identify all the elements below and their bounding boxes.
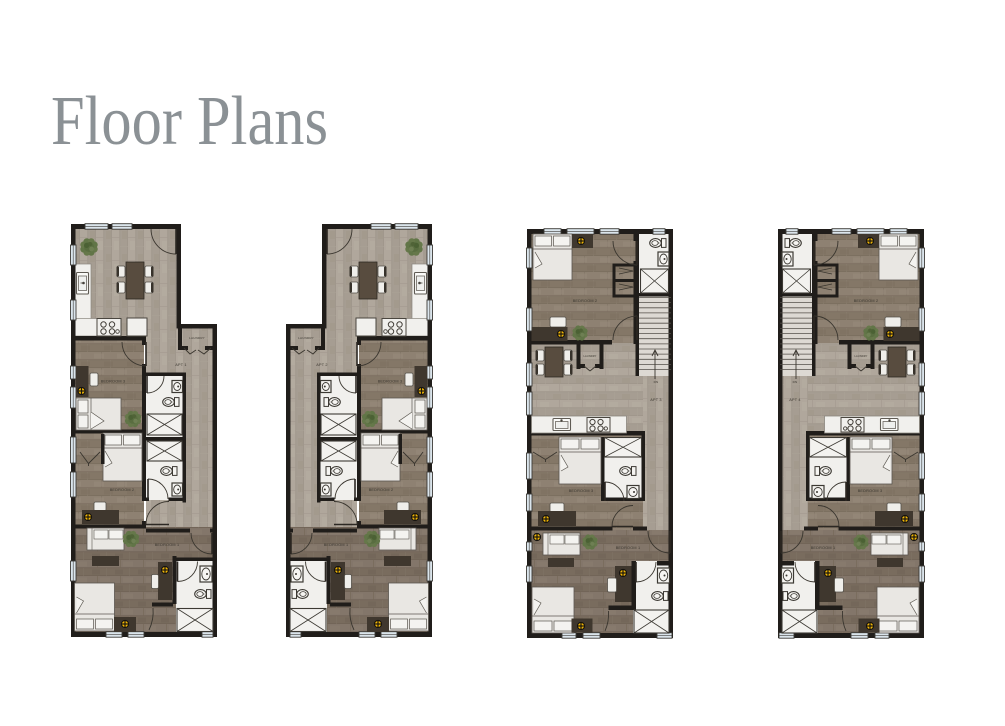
svg-text:APT 2: APT 2 [316,363,327,367]
svg-text:BEDROOM 1: BEDROOM 1 [616,546,641,550]
svg-text:BEDROOM 1: BEDROOM 1 [811,546,836,550]
svg-text:Floor Plans: Floor Plans [51,83,328,160]
svg-text:BEDROOM 1: BEDROOM 1 [155,543,180,547]
svg-text:LAUNDRY: LAUNDRY [854,354,867,358]
svg-text:BEDROOM 1: BEDROOM 1 [324,543,349,547]
svg-text:LAUNDRY: LAUNDRY [583,354,596,358]
svg-text:BEDROOM 3: BEDROOM 3 [101,380,126,384]
svg-text:BEDROOM 3: BEDROOM 3 [569,489,594,493]
svg-text:APT 1: APT 1 [175,363,186,367]
svg-text:DN: DN [793,380,798,384]
svg-text:LAUNDRY: LAUNDRY [298,336,314,340]
svg-text:APT 4: APT 4 [789,398,800,402]
svg-text:BEDROOM 2: BEDROOM 2 [573,299,598,303]
svg-text:BEDROOM 3: BEDROOM 3 [378,380,403,384]
svg-text:BEDROOM 3: BEDROOM 3 [858,489,883,493]
svg-text:LAUNDRY: LAUNDRY [189,336,205,340]
svg-text:APT 3: APT 3 [650,398,661,402]
svg-text:BEDROOM 2: BEDROOM 2 [110,488,135,492]
svg-text:BEDROOM 2: BEDROOM 2 [854,299,879,303]
svg-text:DN: DN [654,380,659,384]
svg-text:BEDROOM 2: BEDROOM 2 [369,488,394,492]
